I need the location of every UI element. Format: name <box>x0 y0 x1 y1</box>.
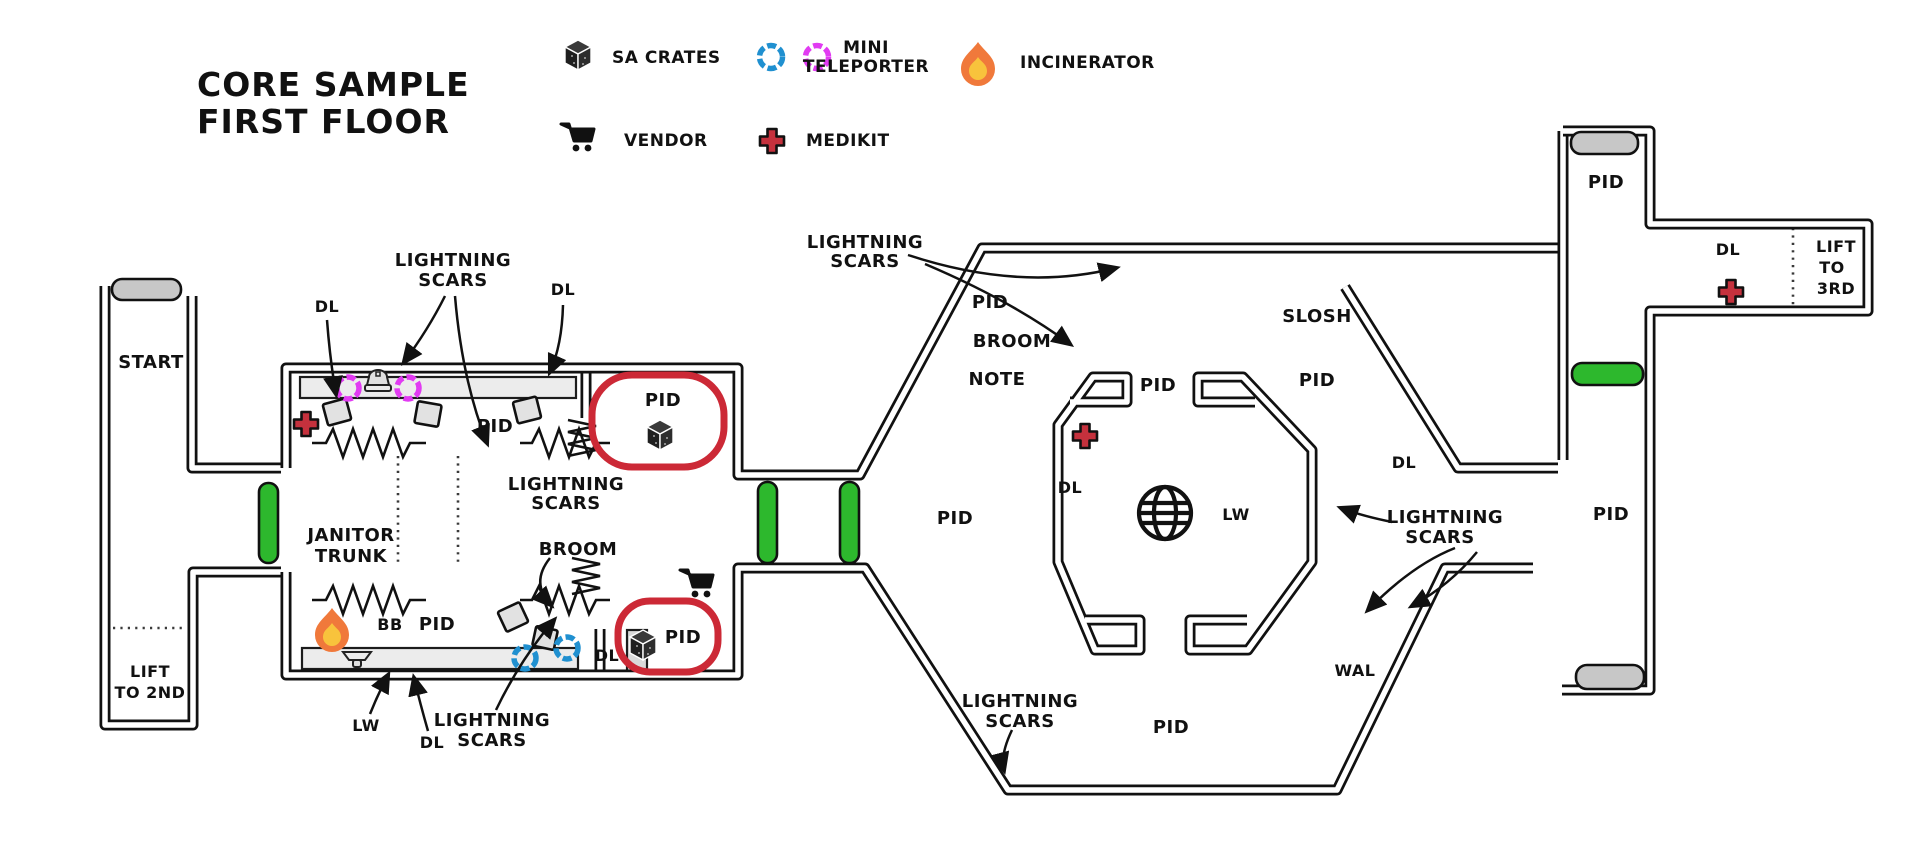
medikit-icon <box>1719 280 1743 304</box>
label-pid: PID <box>972 292 1008 313</box>
label-dl: DL <box>595 646 619 665</box>
label-lift-2nd-2: TO 2ND <box>115 683 186 702</box>
medikit-icon <box>760 129 784 153</box>
wall-slosh-diagonal <box>1345 287 1558 468</box>
label-pid: PID <box>477 416 513 437</box>
label-lightning-scars-6b: SCARS <box>985 711 1054 732</box>
label-janitor-trunk-1: JANITOR <box>305 525 394 546</box>
green-door <box>259 483 278 563</box>
label-lift-2nd-1: LIFT <box>130 662 170 681</box>
lightning-scar-zigzag <box>520 586 610 614</box>
legend-mini-teleporter-2: TELEPORTER <box>803 57 929 77</box>
label-lightning-scars-6: LIGHTNING <box>962 691 1078 712</box>
label-dl: DL <box>420 733 444 752</box>
teleporter-blue-icon <box>760 46 783 69</box>
label-lightning-scars-3b: SCARS <box>457 730 526 751</box>
label-pid: PID <box>645 390 681 411</box>
wall-inner-ring-right <box>1190 377 1312 650</box>
legend-sa-crates: SA CRATES <box>612 48 721 68</box>
annotation-arrow <box>1003 730 1012 770</box>
annotation-arrow <box>370 675 388 714</box>
page: { "title": { "line1": "CORE SAMPLE", "li… <box>0 0 1914 857</box>
gray-door-bar <box>1571 132 1638 154</box>
label-wal: WAL <box>1334 661 1375 680</box>
label-lift-3rd-1: LIFT <box>1816 237 1856 256</box>
label-pid: PID <box>419 614 455 635</box>
label-lightning-scars-2: LIGHTNING <box>508 474 624 495</box>
gray-door-bar <box>112 279 181 300</box>
green-door <box>840 482 859 563</box>
label-dl: DL <box>1716 240 1740 259</box>
label-lightning-scars-2b: SCARS <box>531 493 600 514</box>
annotation-arrow <box>414 678 428 731</box>
gray-door-bar <box>1576 665 1644 689</box>
annotation-arrow <box>550 305 563 372</box>
wall-right-corridor-outline <box>1562 131 1868 690</box>
label-dl: DL <box>1058 478 1082 497</box>
legend-medikit: MEDIKIT <box>806 131 890 151</box>
label-lightning-scars-5: LIGHTNING <box>1387 507 1503 528</box>
label-janitor-trunk-2: TRUNK <box>315 546 388 567</box>
gray-crate-icon <box>414 401 441 427</box>
wall-left-corridor-inner <box>192 296 281 468</box>
label-pid: PID <box>1299 370 1335 391</box>
label-dl: DL <box>1392 453 1416 472</box>
map-canvas: CORE SAMPLE FIRST FLOOR SA CRATES MINI T… <box>0 0 1914 857</box>
sa-crates-icon <box>630 630 656 660</box>
label-dl: DL <box>315 297 339 316</box>
label-lift-3rd-3: 3RD <box>1817 279 1855 298</box>
sa-crates-icon <box>647 420 673 450</box>
label-pid: PID <box>665 627 701 648</box>
label-note: NOTE <box>969 369 1026 390</box>
wall-inner-ring-left <box>1058 377 1140 650</box>
annotation-arrow <box>1341 508 1392 522</box>
label-dl: DL <box>551 280 575 299</box>
label-lw: LW <box>352 716 380 735</box>
label-lightning-scars-4: LIGHTNING <box>807 232 923 253</box>
label-broom: BROOM <box>539 539 618 560</box>
label-pid: PID <box>1588 172 1624 193</box>
globe-icon <box>1139 487 1191 539</box>
label-broom: BROOM <box>973 331 1052 352</box>
green-door <box>758 482 777 563</box>
label-pid: PID <box>937 508 973 529</box>
vendor-icon <box>680 570 713 597</box>
incinerator-icon <box>961 42 995 86</box>
label-pid: PID <box>1153 717 1189 738</box>
legend: SA CRATES MINI TELEPORTER INCINERATOR VE… <box>561 38 1155 153</box>
label-bb: BB <box>377 615 402 634</box>
legend-vendor: VENDOR <box>624 131 708 151</box>
label-slosh: SLOSH <box>1282 306 1352 327</box>
spring-zigzag <box>572 558 600 594</box>
annotation-arrow <box>540 558 551 605</box>
label-lightning-scars-1b: SCARS <box>418 270 487 291</box>
lightning-scar-zigzag <box>312 586 426 614</box>
medikit-icon <box>294 412 318 436</box>
annotation-arrow <box>404 296 445 362</box>
label-pid: PID <box>1593 504 1629 525</box>
label-lightning-scars-3: LIGHTNING <box>434 710 550 731</box>
annotation-arrow <box>908 255 1116 277</box>
label-pid: PID <box>1140 375 1176 396</box>
map-title-line2: FIRST FLOOR <box>197 102 450 141</box>
map-title-line1: CORE SAMPLE <box>197 65 470 104</box>
medikit-icon <box>1073 424 1097 448</box>
gray-crate-icon <box>497 602 528 632</box>
lightning-scar-zigzag <box>312 429 426 457</box>
gray-crate-icon <box>323 398 352 425</box>
label-lightning-scars-5b: SCARS <box>1405 527 1474 548</box>
label-lw: LW <box>1222 505 1250 524</box>
legend-incinerator: INCINERATOR <box>1020 53 1155 73</box>
green-door <box>1572 363 1643 385</box>
label-lightning-scars-4b: SCARS <box>830 251 899 272</box>
vendor-icon <box>561 124 594 151</box>
label-lightning-scars-1: LIGHTNING <box>395 250 511 271</box>
label-start: START <box>118 352 184 373</box>
sa-crates-icon <box>565 40 591 70</box>
legend-mini-teleporter-1: MINI <box>843 38 889 58</box>
gray-crate-icon <box>513 396 542 423</box>
label-lift-3rd-2: TO <box>1819 258 1845 277</box>
